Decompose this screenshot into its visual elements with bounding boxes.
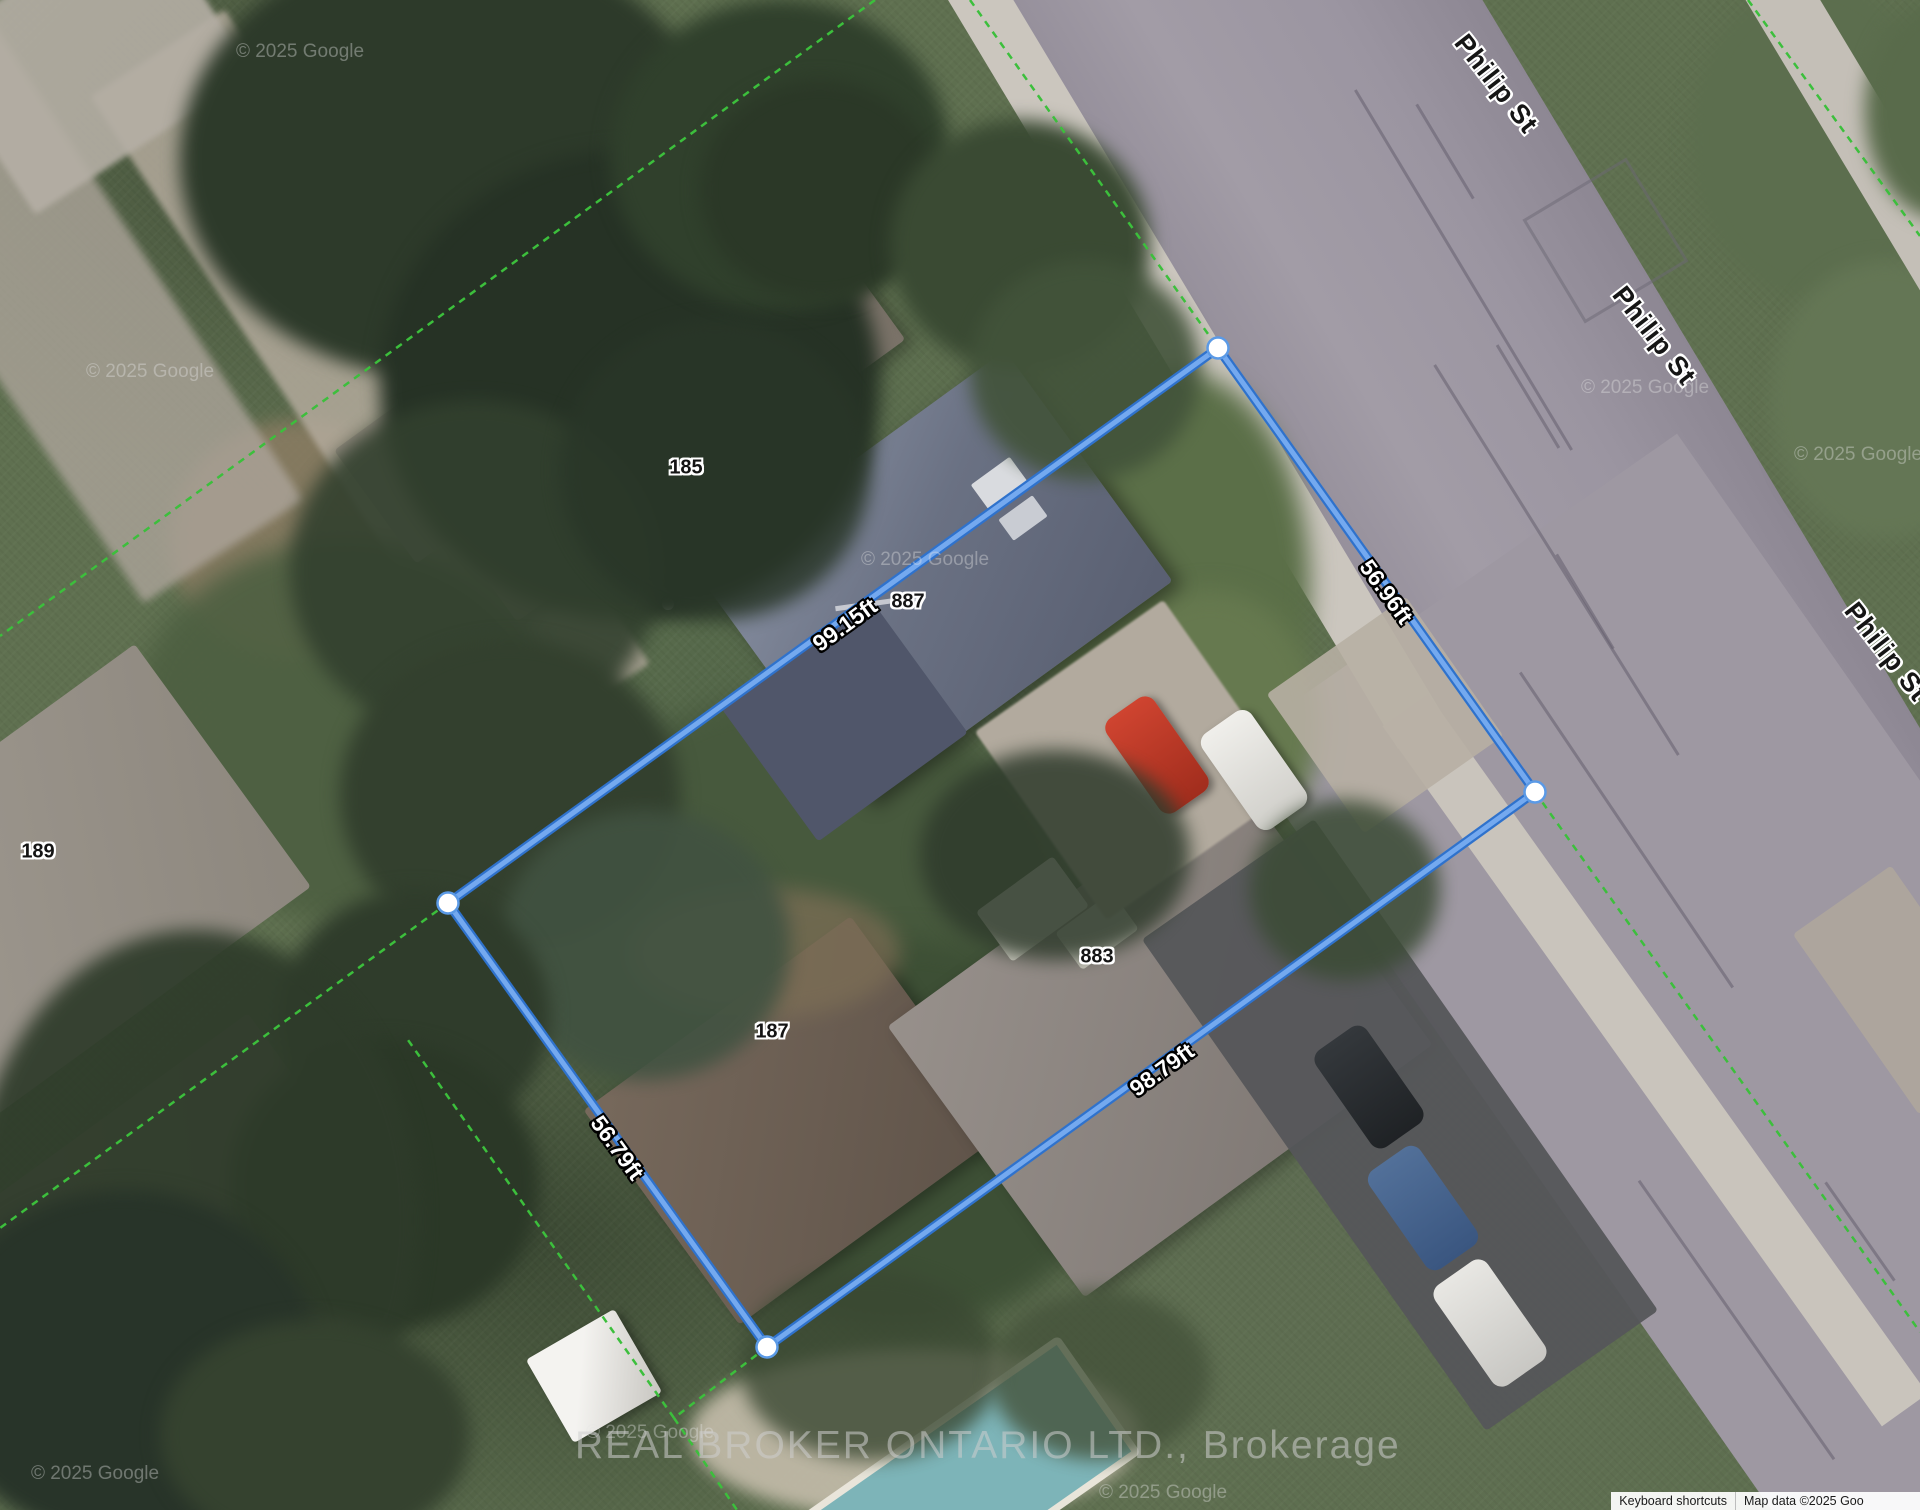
google-imagery-watermark: © 2025 Google: [86, 361, 214, 383]
brokerage-watermark: REAL BROKER ONTARIO LTD., Brokerage: [575, 1424, 1401, 1468]
map-attribution-bar: Keyboard shortcuts Map data ©2025 Goo: [1611, 1492, 1920, 1510]
address-label-185: 185: [669, 457, 702, 480]
google-imagery-watermark: © 2025 Google: [31, 1463, 159, 1485]
google-imagery-watermark: © 2025 Google: [236, 41, 364, 63]
address-label-883: 883: [1080, 946, 1113, 969]
tree-canopy: [560, 320, 870, 620]
tree-canopy: [920, 750, 1190, 960]
address-label-187: 187: [755, 1021, 788, 1044]
google-imagery-watermark: © 2025 Google: [1794, 444, 1920, 466]
google-imagery-watermark: © 2025 Google: [1581, 377, 1709, 399]
tree-canopy: [970, 260, 1200, 480]
map-data-attribution: Map data ©2025 Goo: [1736, 1492, 1920, 1510]
keyboard-shortcuts-button[interactable]: Keyboard shortcuts: [1611, 1492, 1736, 1510]
tree-canopy: [1250, 800, 1440, 980]
google-imagery-watermark: © 2025 Google: [861, 549, 989, 571]
address-label-887: 887: [891, 591, 924, 614]
address-label-189: 189: [21, 841, 54, 864]
google-imagery-watermark: © 2025 Google: [1099, 1482, 1227, 1504]
satellite-map-canvas[interactable]: 99.15ft 56.96ft 98.79ft 56.79ft 185 887 …: [0, 0, 1920, 1510]
